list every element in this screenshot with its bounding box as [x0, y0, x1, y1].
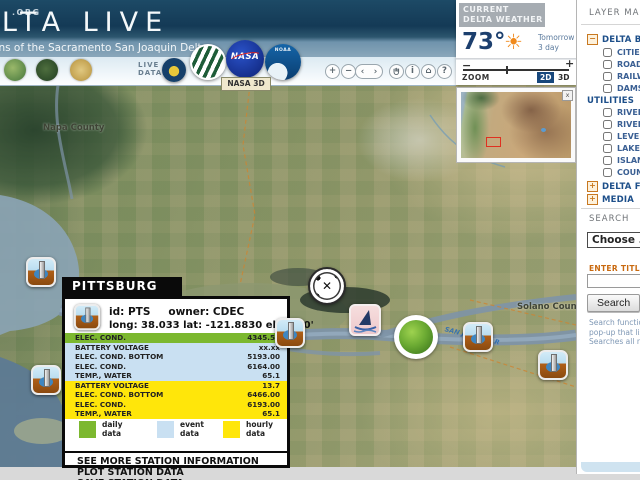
- fish-agency-logo[interactable]: [162, 58, 186, 82]
- station-icon: [74, 304, 100, 330]
- help-button[interactable]: ?: [437, 64, 452, 79]
- sun-icon: ☀: [504, 30, 523, 54]
- zoom-label: ZOOM: [462, 73, 490, 82]
- search-help-text: Search functio pop-up that lis Searches …: [589, 318, 640, 347]
- panel-footer: [581, 462, 640, 472]
- checkbox-levees[interactable]: [603, 132, 612, 141]
- station-marker[interactable]: [31, 365, 61, 395]
- delta-council-logo[interactable]: [190, 44, 226, 80]
- station-id-line: id: PTSowner: CDEC: [109, 306, 262, 318]
- section-label: MEDIA: [602, 195, 634, 205]
- help-line: pop-up that lis: [589, 328, 640, 338]
- divider: [581, 208, 640, 209]
- checkbox-lakes[interactable]: [603, 144, 612, 153]
- zoom-in-button[interactable]: +: [325, 64, 340, 79]
- data-row: TEMP., WATER65.1: [65, 409, 287, 419]
- zoom-out-button[interactable]: −: [341, 64, 356, 79]
- layer-row-dams: DAMS: [603, 84, 640, 93]
- basemap-thumbnail-1[interactable]: [4, 59, 26, 81]
- help-line: Searches all n: [589, 337, 640, 347]
- section-delta-base-layers[interactable]: − DELTA BASE LAYERS: [587, 34, 640, 45]
- collapse-icon[interactable]: −: [587, 34, 598, 45]
- three-day-link[interactable]: 3 day: [538, 43, 559, 52]
- see-more-station-info-link[interactable]: SEE MORE STATION INFORMATION: [77, 456, 259, 467]
- county-label-solano-right: Solano County: [517, 302, 576, 312]
- mode-3d-button[interactable]: 3D: [558, 73, 569, 82]
- county-label-napa: Napa County: [43, 123, 104, 133]
- pan-button[interactable]: [389, 64, 404, 79]
- weather-divider: [456, 58, 576, 60]
- station-marker[interactable]: [463, 322, 493, 352]
- help-line: Search functio: [589, 318, 640, 328]
- inset-close-button[interactable]: x: [562, 90, 573, 101]
- windsurf-recreation-icon[interactable]: [349, 304, 381, 336]
- expand-icon[interactable]: +: [587, 194, 598, 205]
- popup-divider: [65, 451, 287, 453]
- legend-item-event: eventdata: [157, 421, 204, 438]
- overview-map-terrain: [461, 92, 571, 158]
- section-utilities: UTILITIES: [587, 96, 634, 106]
- event-swatch: [157, 421, 174, 438]
- app-subtitle: Conditions of the Sacramento San Joaquin…: [0, 42, 208, 54]
- legend-item-daily: dailydata: [79, 421, 122, 438]
- current-view-rectangle[interactable]: [486, 137, 501, 147]
- search-title-input[interactable]: [587, 274, 640, 288]
- section-delta-features[interactable]: + DELTA FEATURES: [587, 181, 640, 192]
- crosshair-x: ✕: [310, 269, 344, 303]
- layer-label: LEVEES: [617, 132, 640, 141]
- info-button[interactable]: i: [405, 64, 420, 79]
- data-row: ELEC. COND. BOTTOM6466.00: [65, 390, 287, 400]
- layer-row-river-streams: RIVER/STREAMS: [603, 108, 640, 117]
- nasa-3d-tooltip: NASA 3D: [221, 77, 271, 91]
- layer-label: DAMS: [617, 84, 640, 93]
- layer-row-counties: COUNTIES: [603, 168, 640, 177]
- basemap-thumbnail-3[interactable]: [70, 59, 92, 81]
- layer-label: CITIES: [617, 48, 640, 57]
- layer-label: COUNTIES: [617, 168, 640, 177]
- layer-label: RIVER/STREAMS: [617, 108, 640, 117]
- basemap-thumbnail-2[interactable]: [36, 59, 58, 81]
- enter-title-label: ENTER TITLE: [589, 264, 640, 273]
- layer-row-lakes: LAKES: [603, 144, 640, 153]
- checkbox-roads[interactable]: [603, 60, 612, 69]
- weather-title: CURRENT DELTA WEATHER: [459, 3, 545, 27]
- noaa-logo-text: NOAA: [265, 48, 301, 53]
- noaa-logo[interactable]: NOAA: [265, 44, 301, 80]
- data-row: TEMP., WATER65.1: [65, 371, 287, 381]
- zoom-slider-handle[interactable]: [506, 66, 508, 74]
- weather-widget: CURRENT DELTA WEATHER 73° ☀ Tomorrow 3 d…: [456, 0, 576, 85]
- station-marker[interactable]: [538, 350, 568, 380]
- station-owner: owner: CDEC: [168, 306, 244, 318]
- checkbox-railways[interactable]: [603, 72, 612, 81]
- windsurfer-graphic: [351, 306, 379, 334]
- pan-hand-icon: [392, 67, 401, 76]
- data-row: BATTERY VOLTAGExx.xx: [65, 343, 287, 353]
- legend-item-hourly: hourlydata: [223, 421, 273, 438]
- weather-title-line2: DELTA WEATHER: [463, 15, 545, 25]
- layer-row-river-channels: RIVER/CHANNELS: [603, 120, 640, 129]
- popup-title: PITTSBURG: [62, 277, 182, 296]
- target-crosshair-icon[interactable]: ✕: [308, 267, 346, 305]
- lake-dot: [541, 128, 546, 132]
- algae-blob: [399, 320, 433, 354]
- app-title: DELTA LIVE: [0, 7, 169, 38]
- layer-manager-panel: LAYER MANAGER − DELTA BASE LAYERS CITIES…: [576, 0, 640, 474]
- weather-title-line1: CURRENT: [463, 5, 545, 15]
- layer-label: RAILWAYS: [617, 72, 640, 81]
- popup-links: SEE MORE STATION INFORMATION PLOT STATIO…: [77, 456, 259, 480]
- section-media[interactable]: + MEDIA: [587, 194, 634, 205]
- checkbox-cities[interactable]: [603, 48, 612, 57]
- checkbox-river-channels[interactable]: [603, 120, 612, 129]
- checkbox-islands[interactable]: [603, 156, 612, 165]
- layer-label: ISLANDS: [617, 156, 640, 165]
- layer-row-levees: LEVEES: [603, 132, 640, 141]
- hourly-swatch: [223, 421, 240, 438]
- divider: [581, 24, 640, 25]
- data-row: ELEC. COND. BOTTOM5193.00: [65, 352, 287, 362]
- algae-bloom-icon[interactable]: [394, 315, 438, 359]
- station-popup-pittsburg: PITTSBURG id: PTSowner: CDEC long: 38.03…: [62, 277, 290, 468]
- data-row: ELEC. COND.4345.50: [65, 333, 287, 343]
- station-data-table: ELEC. COND.4345.50 BATTERY VOLTAGExx.xx …: [65, 333, 287, 419]
- layer-row-roads: ROADS: [603, 60, 640, 69]
- station-marker-pittsburg[interactable]: [275, 318, 305, 348]
- search-section-title: SEARCH: [589, 214, 629, 224]
- legend: dailydata eventdata hourlydata: [65, 421, 287, 447]
- nasa-logo[interactable]: NASA: [226, 40, 264, 78]
- temperature-value: 73°: [462, 29, 506, 55]
- checkbox-river-streams[interactable]: [603, 108, 612, 117]
- layer-label: RIVER/CHANNELS: [617, 120, 640, 129]
- mode-2d-button[interactable]: 2D: [537, 72, 554, 83]
- layer-row-islands: ISLANDS: [603, 156, 640, 165]
- home-button[interactable]: ⌂: [421, 64, 436, 79]
- forward-button[interactable]: ›: [374, 67, 378, 77]
- data-row: ELEC. COND.6164.00: [65, 362, 287, 372]
- section-label: DELTA BASE LAYERS: [602, 35, 640, 45]
- popup-body: id: PTSowner: CDEC long: 38.033 lat: -12…: [62, 296, 290, 468]
- section-label: DELTA FEATURES: [602, 182, 640, 192]
- search-category-dropdown[interactable]: Choose ...: [587, 232, 640, 248]
- checkbox-dams[interactable]: [603, 84, 612, 93]
- layer-label: LAKES: [617, 144, 640, 153]
- panel-title: LAYER MANAGER: [589, 8, 640, 18]
- overview-inset-map[interactable]: x: [456, 87, 576, 163]
- layer-row-cities: CITIES: [603, 48, 640, 57]
- daily-swatch: [79, 421, 96, 438]
- expand-icon[interactable]: +: [587, 181, 598, 192]
- data-row: BATTERY VOLTAGE13.7: [65, 381, 287, 391]
- delta-live-app: Napa County Solano Co Solano County SAN …: [0, 0, 640, 480]
- search-button[interactable]: Search: [587, 294, 640, 312]
- tomorrow-link[interactable]: Tomorrow: [538, 33, 574, 42]
- station-id: id: PTS: [109, 306, 150, 318]
- layer-label: ROADS: [617, 60, 640, 69]
- plot-station-data-link[interactable]: PLOT STATION DATA: [77, 467, 259, 478]
- station-marker[interactable]: [26, 257, 56, 287]
- section-label: UTILITIES: [587, 96, 634, 106]
- data-row: ELEC. COND.6193.00: [65, 400, 287, 410]
- zoom-slider-track[interactable]: [463, 69, 569, 71]
- checkbox-counties[interactable]: [603, 168, 612, 177]
- history-nav-pill: ‹ ›: [355, 64, 383, 79]
- back-button[interactable]: ‹: [361, 67, 365, 77]
- layer-row-railways: RAILWAYS: [603, 72, 640, 81]
